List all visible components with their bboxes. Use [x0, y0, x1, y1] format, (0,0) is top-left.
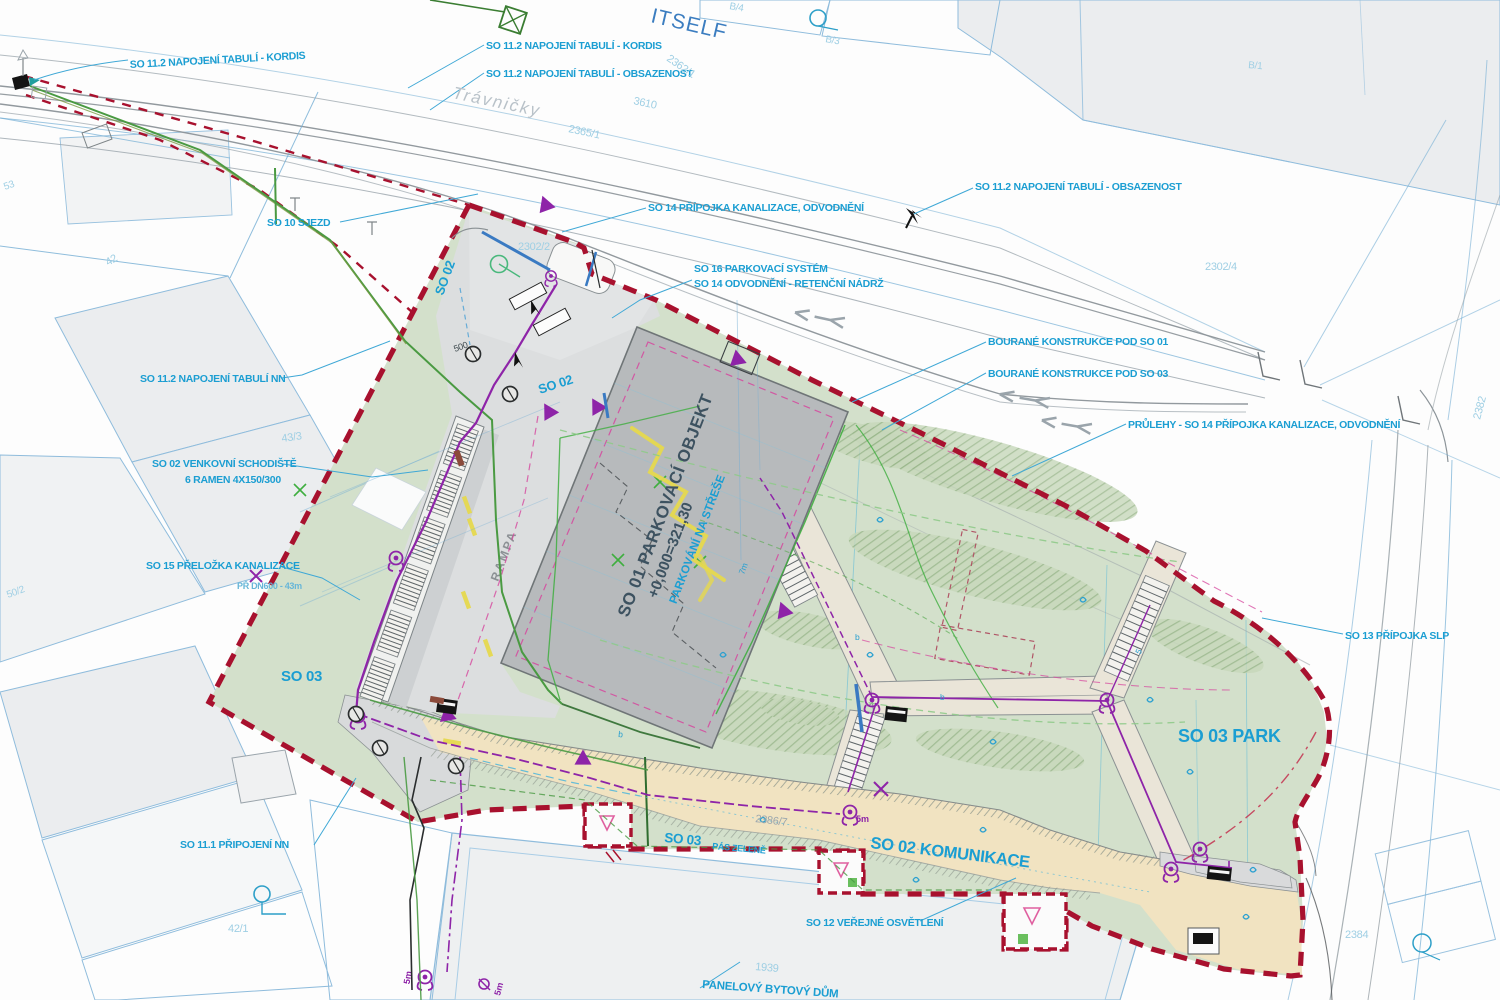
svg-text:SO 11.2 NAPOJENÍ TABULÍ - OBSA: SO 11.2 NAPOJENÍ TABULÍ - OBSAZENOST — [486, 67, 694, 80]
svg-text:1939: 1939 — [755, 961, 779, 975]
svg-text:b: b — [940, 692, 945, 702]
svg-text:PŘ DN600 - 43m: PŘ DN600 - 43m — [237, 580, 302, 591]
svg-text:SO 11.2 NAPOJENÍ TABULÍ - KORD: SO 11.2 NAPOJENÍ TABULÍ - KORDIS — [486, 39, 662, 52]
svg-text:B/1: B/1 — [1248, 60, 1264, 72]
svg-text:SO 03: SO 03 — [281, 668, 322, 685]
svg-text:SO 14 PŘÍPOJKA KANALIZACE, ODV: SO 14 PŘÍPOJKA KANALIZACE, ODVODNĚNÍ — [648, 201, 865, 214]
svg-text:PRŮLEHY - SO 14 PŘÍPOJKA KANAL: PRŮLEHY - SO 14 PŘÍPOJKA KANALIZACE, ODV… — [1128, 417, 1401, 431]
svg-text:SO 11.2 NAPOJENÍ TABULÍ - OBSA: SO 11.2 NAPOJENÍ TABULÍ - OBSAZENOST — [975, 180, 1183, 193]
svg-text:SO 11.2 NAPOJENÍ TABULÍ NN: SO 11.2 NAPOJENÍ TABULÍ NN — [140, 372, 285, 385]
svg-text:SO 10 SJEZD: SO 10 SJEZD — [267, 217, 331, 229]
svg-text:SO 11.1 PŘIPOJENÍ NN: SO 11.1 PŘIPOJENÍ NN — [180, 838, 289, 851]
svg-text:2302/2: 2302/2 — [518, 241, 550, 253]
svg-text:2302/4: 2302/4 — [1205, 261, 1237, 273]
svg-text:SO 14 ODVODNĚNÍ - RETENČNÍ NÁD: SO 14 ODVODNĚNÍ - RETENČNÍ NÁDRŽ — [694, 277, 884, 290]
svg-text:SO 02 VENKOVNÍ SCHODIŠTĚ: SO 02 VENKOVNÍ SCHODIŠTĚ — [152, 457, 297, 470]
svg-text:b: b — [855, 632, 860, 642]
svg-text:SO 16 PARKOVACÍ SYSTÉM: SO 16 PARKOVACÍ SYSTÉM — [694, 262, 828, 275]
svg-text:SO 03 PARK: SO 03 PARK — [1178, 726, 1281, 746]
svg-text:42/1: 42/1 — [228, 923, 248, 935]
svg-text:6 RAMEN 4X150/300: 6 RAMEN 4X150/300 — [185, 474, 281, 486]
svg-text:SO 13 PŘÍPOJKA SLP: SO 13 PŘÍPOJKA SLP — [1345, 629, 1449, 642]
svg-text:SO 12 VEŘEJNÉ OSVĚTLENÍ: SO 12 VEŘEJNÉ OSVĚTLENÍ — [806, 916, 945, 929]
svg-text:BOURANÉ KONSTRUKCE POD SO 03: BOURANÉ KONSTRUKCE POD SO 03 — [988, 367, 1169, 380]
svg-text:5m: 5m — [856, 814, 869, 824]
svg-text:BOURANÉ KONSTRUKCE POD SO 01: BOURANÉ KONSTRUKCE POD SO 01 — [988, 335, 1169, 348]
svg-text:2384: 2384 — [1345, 929, 1368, 941]
svg-text:SO 15 PŘELOŽKA KANALIZACE: SO 15 PŘELOŽKA KANALIZACE — [146, 559, 300, 572]
